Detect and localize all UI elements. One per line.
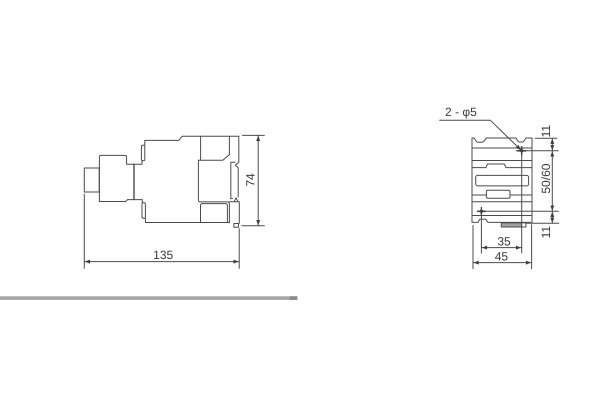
svg-text:50/60: 50/60 — [539, 163, 553, 193]
svg-text:45: 45 — [495, 249, 509, 263]
svg-text:2 - φ5: 2 - φ5 — [445, 105, 477, 119]
svg-text:135: 135 — [153, 248, 173, 262]
svg-text:11: 11 — [539, 226, 553, 239]
svg-text:74: 74 — [244, 173, 258, 187]
svg-text:11: 11 — [539, 125, 553, 138]
svg-text:35: 35 — [497, 234, 511, 248]
